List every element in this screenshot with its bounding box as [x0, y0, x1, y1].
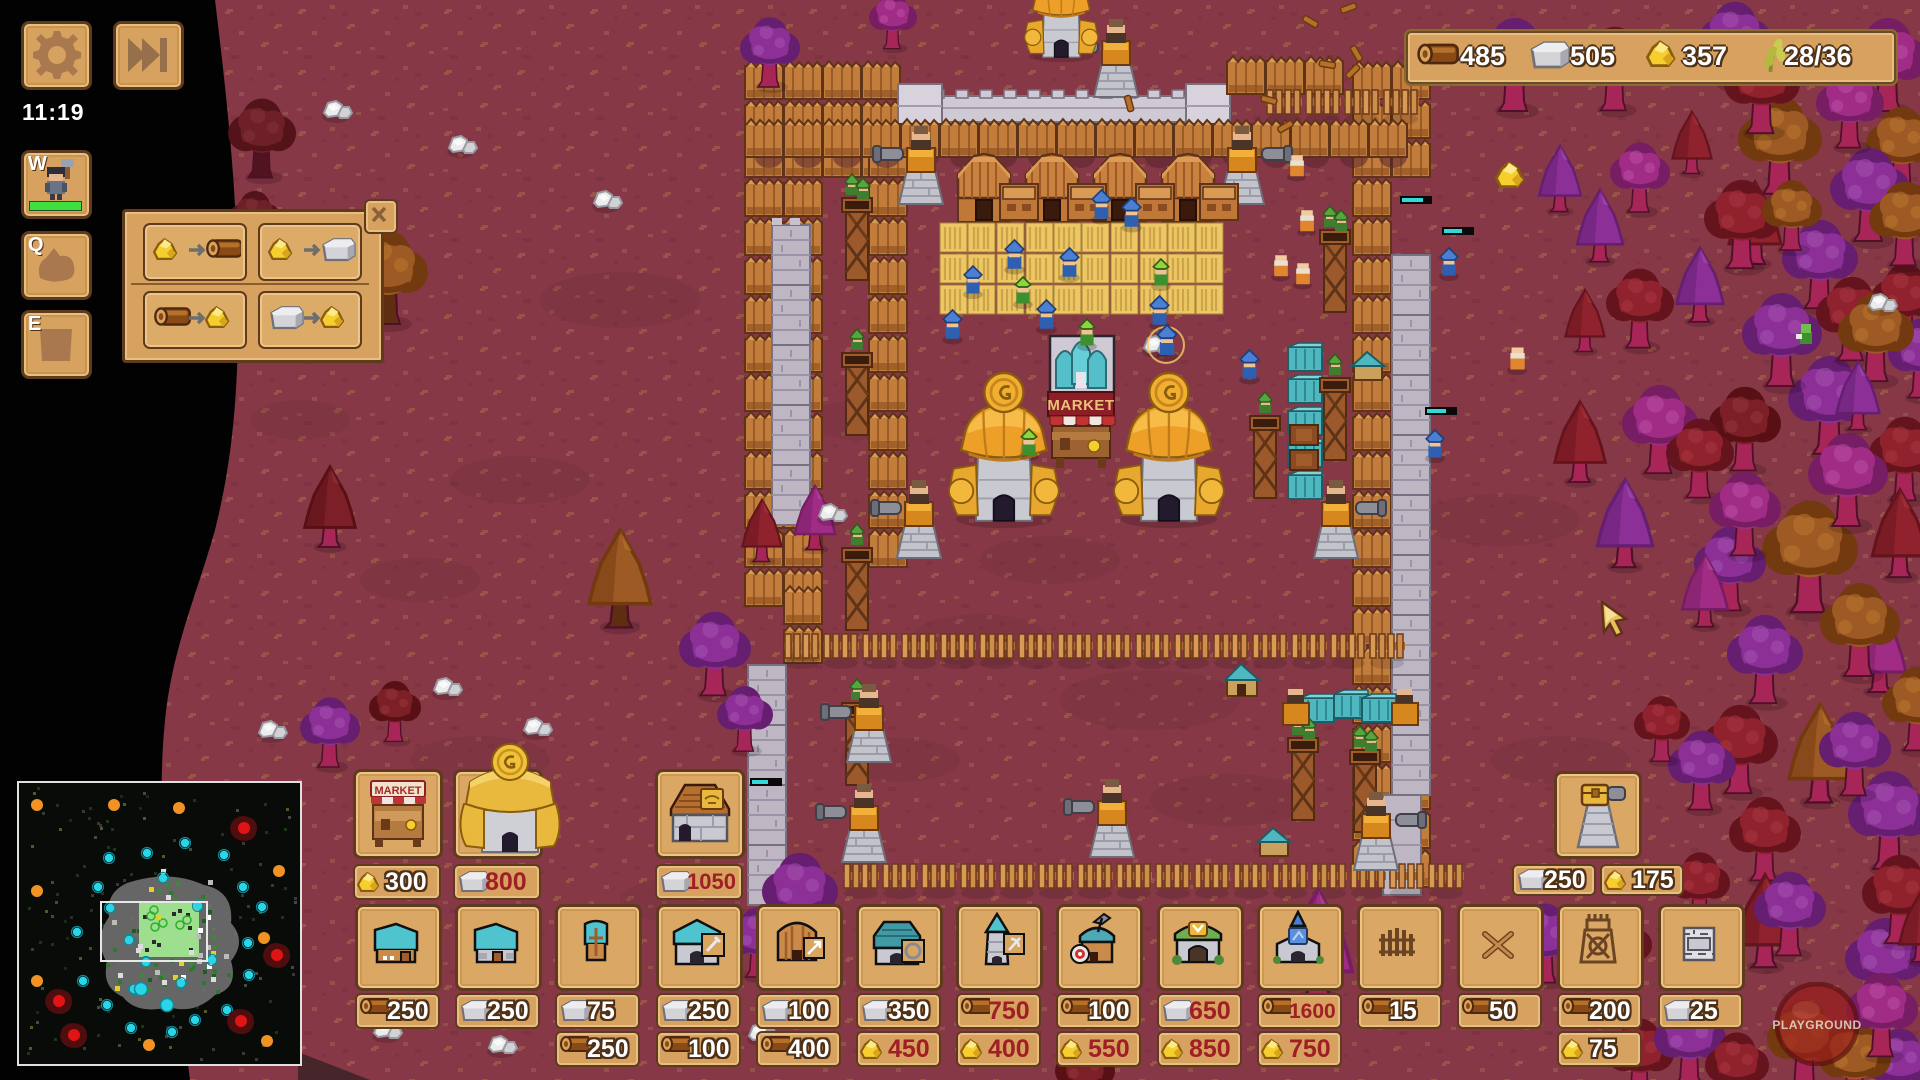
svg-text:MARKET: MARKET: [374, 785, 421, 797]
svg-text:PLAYGROUND: PLAYGROUND: [1772, 1018, 1861, 1032]
svg-text:MARKET: MARKET: [1047, 397, 1114, 414]
